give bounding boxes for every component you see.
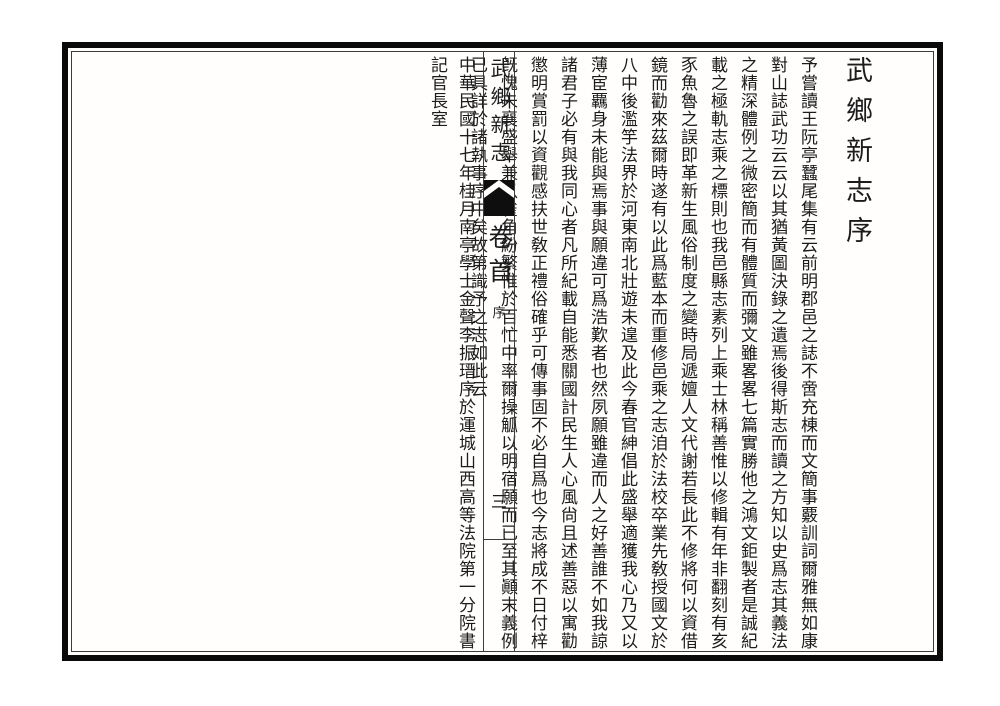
body-column: 薄宦覊身未能與焉事與願違可爲浩歎者也然夙願雖違而人之好善誰不如我諒 [582,56,612,647]
fold-divider-line [484,539,514,540]
scanned-page: 武鄉新志序 予嘗讀王阮亭蠶尾集有云前明郡邑之誌不啻充棟而文簡事覈訓詞爾雅無如康 … [0,0,1000,706]
page-sheet: 武鄉新志序 予嘗讀王阮亭蠶尾集有云前明郡邑之誌不啻充棟而文簡事覈訓詞爾雅無如康 … [62,42,943,661]
fishtail-marker-icon [484,180,514,216]
body-column: 諸君子必有與我同心者凡所紀載自能悉關國計民生人心風尙且述善惡以寓勸 [552,56,582,647]
body-column: 之精深體例之微密簡而有體質而彌文雖畧畧七篇實勝他之鴻文鉅製者是誠紀 [732,56,762,647]
fold-book-title: 武鄉新志 [484,58,514,170]
body-column: 載之極軌志乘之標則也我邑縣志素列上乘士林稱善惟以修輯有年非翻刻有亥 [702,56,732,647]
colophon-block: 中華民國十七年桂月南亭學士金聲李振瑨序於運城山西高等法院第一分院書 記官長室 [423,56,479,647]
preface-title-column: 武鄉新志序 [839,56,925,647]
body-column: 八中後濫竽法界於河東南北壯遊未遑及此今春官紳倡此盛舉適獲我心乃又以 [612,56,642,647]
preface-text-block: 武鄉新志序 予嘗讀王阮亭蠶尾集有云前明郡邑之誌不啻充棟而文簡事覈訓詞爾雅無如康 … [462,56,925,647]
body-column: 豕魚魯之誤即革新生風俗制度之變時局遞嬗人文代謝若長此不修將何以資借 [672,56,702,647]
inner-border-frame: 武鄉新志序 予嘗讀王阮亭蠶尾集有云前明郡邑之誌不啻充棟而文簡事覈訓詞爾雅無如康 … [71,51,934,652]
body-column: 予嘗讀王阮亭蠶尾集有云前明郡邑之誌不啻充棟而文簡事覈訓詞爾雅無如康 [792,56,822,647]
body-column: 鏡而勸來茲爾時遂有以此爲藍本而重修邑乘之志洎於法校卒業先敎授國文於 [642,56,672,647]
body-column: 懲明賞罰以資觀感扶世敎正禮俗確乎可傳事固不必自爲也今志將成不日付梓 [522,56,552,647]
colophon-column: 中華民國十七年桂月南亭學士金聲李振瑨序於運城山西高等法院第一分院書 [451,56,479,647]
colophon-column: 記官長室 [423,56,451,647]
fold-section-label: 序 [484,302,514,321]
center-fold-column: 武鄉新志 卷首 序 三 [483,52,515,651]
body-column: 對山誌武功云云以其猶黃圖決錄之遺焉後得斯志而讀之方知以史爲志其義法 [762,56,792,647]
fold-page-number: 三 [484,488,514,512]
fold-fascicle-label: 卷首 [484,224,514,292]
